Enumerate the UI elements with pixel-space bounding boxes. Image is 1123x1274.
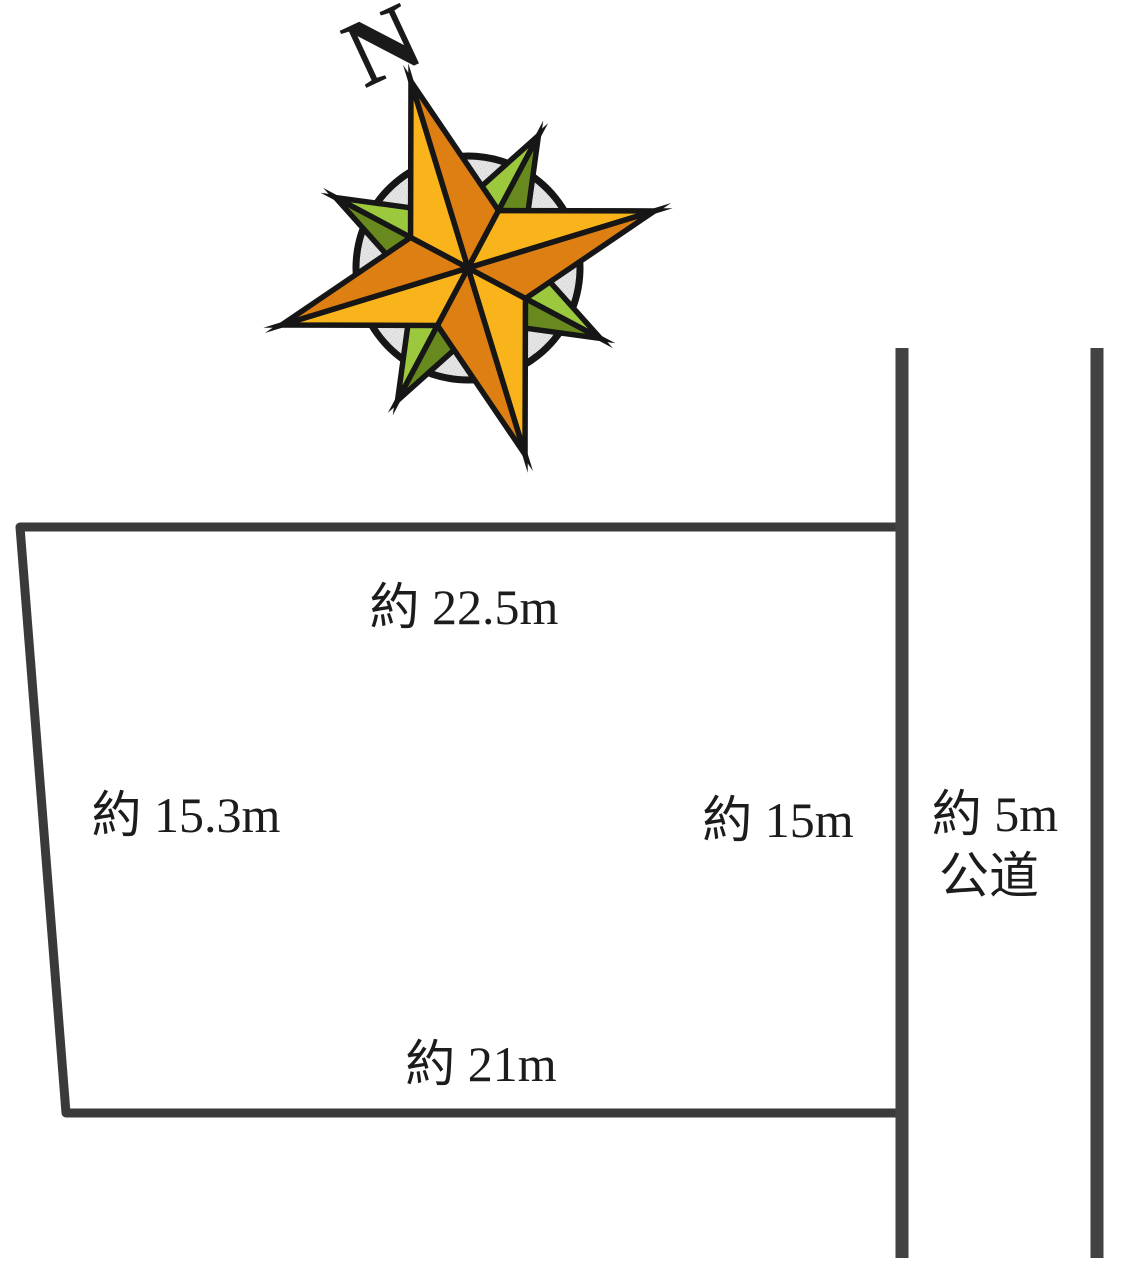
land-plot-diagram: N 約 22.5m 約 15.3m 約 15m 約 21m 約 5m 公道 — [0, 0, 1123, 1274]
dimension-bottom: 約 21m — [405, 1039, 556, 1089]
road-width-label: 約 5m — [932, 789, 1058, 839]
dimension-left: 約 15.3m — [92, 790, 281, 840]
road-type-label: 公道 — [939, 851, 1039, 901]
dimension-right: 約 15m — [702, 795, 853, 845]
compass-rose — [225, 25, 712, 512]
diagram-svg: N — [0, 0, 1123, 1274]
dimension-top: 約 22.5m — [370, 582, 559, 632]
